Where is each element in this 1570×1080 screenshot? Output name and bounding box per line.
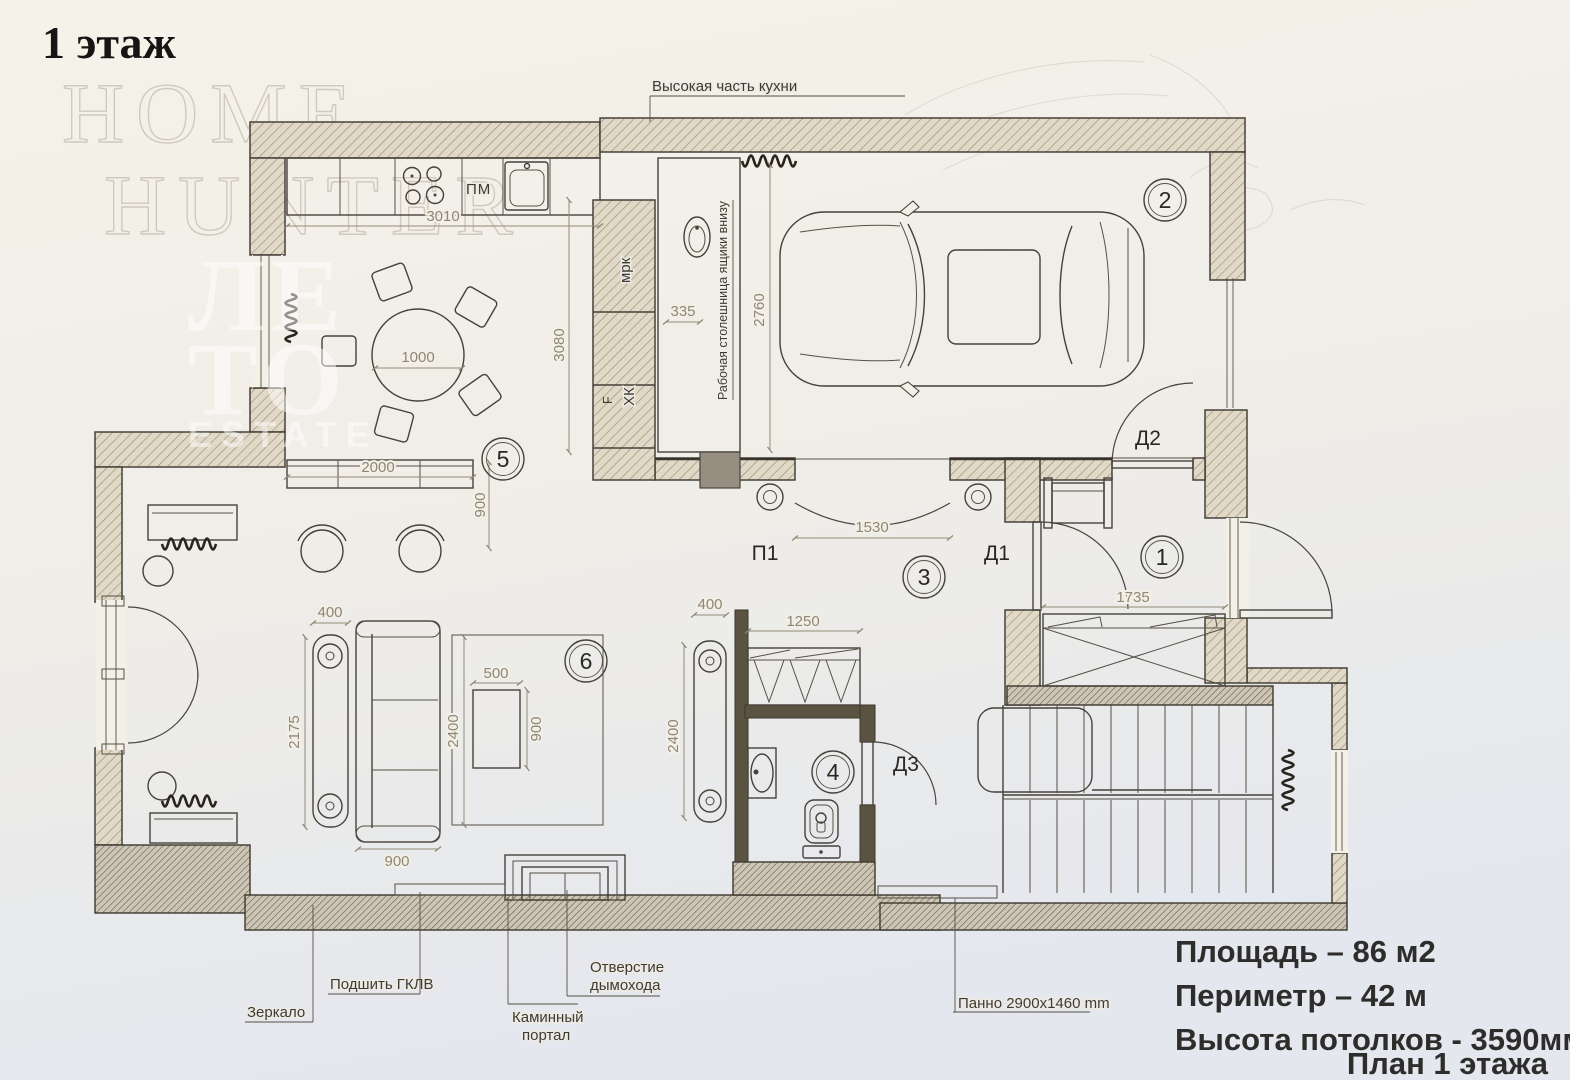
wall-bottom-bathroom <box>733 862 875 895</box>
wall-left-lower <box>95 748 122 845</box>
wall-bathroom-right-lower <box>860 805 875 862</box>
wall-left-upper <box>95 467 122 602</box>
wall-stairs-right-upper <box>1332 683 1347 750</box>
wall-bathroom-left <box>735 610 748 862</box>
floor-plan-photo: HOME HUNTER <box>0 0 1570 1080</box>
wall-bottom-stairs <box>880 903 1347 930</box>
cabinet-mrk-label: мрк <box>617 257 634 283</box>
cabinet-hk-label: ХК <box>621 387 638 406</box>
d1-label: Д1 <box>984 542 1010 565</box>
dim-entry-wardrobe: 1735 <box>1116 589 1149 606</box>
dim-bar-depth: 900 <box>472 492 489 517</box>
chimney-label-2: дымохода <box>590 977 661 994</box>
dim-console-right-width: 400 <box>697 596 722 613</box>
dim-rug-length: 2400 <box>445 714 462 747</box>
room-6-number: 6 <box>580 648 593 674</box>
room-5-number: 5 <box>497 446 510 472</box>
wall-bathroom-top <box>745 705 875 718</box>
stairs-window <box>1331 750 1348 853</box>
dim-coffee-table-width: 500 <box>483 665 508 682</box>
wall-garage-top <box>600 118 1245 152</box>
wall-corner-bottom-left <box>95 845 250 913</box>
dim-kitchen-run: 3010 <box>426 208 459 225</box>
wall-kitchen-top <box>250 122 600 158</box>
wall-bathroom-right-upper <box>860 705 875 742</box>
tall-cabinets: мрк F ХК <box>593 200 655 480</box>
wall-hall-top-end <box>1193 458 1205 480</box>
room-4-number: 4 <box>827 759 840 785</box>
page-title: 1 этаж <box>42 17 177 68</box>
dim-console-right-length: 2400 <box>665 719 682 752</box>
floor-plan-canvas: HOME HUNTER <box>0 0 1570 1080</box>
room-3-number: 3 <box>918 564 931 590</box>
worktop-label: Рабочая столешница ящики внизу <box>716 200 730 400</box>
dim-console-left-width: 400 <box>317 604 342 621</box>
d3-label: Д3 <box>893 753 919 776</box>
fireplace-label-2: портал <box>522 1027 570 1044</box>
p1-label: П1 <box>752 542 779 565</box>
dim-console-left-length: 2175 <box>286 715 303 748</box>
cabinet-f-label: F <box>601 396 615 404</box>
room-2-number: 2 <box>1159 187 1172 213</box>
gklv-label: Подшить ГКЛВ <box>330 976 434 993</box>
dim-bath-wardrobe: 1250 <box>786 613 819 630</box>
dim-sofa-width: 900 <box>384 853 409 870</box>
wall-garage-right <box>1210 152 1245 280</box>
dim-dining-table: 1000 <box>401 349 434 366</box>
panel-label: Панно 2900х1460 mm <box>958 995 1110 1012</box>
dim-garage-width: 2760 <box>751 293 768 326</box>
dim-worktop-width: 335 <box>670 303 695 320</box>
dishwasher-label: ПМ <box>466 181 491 198</box>
info-area: Площадь – 86 м2 <box>1175 934 1436 969</box>
chimney-label-1: Отверстие <box>590 959 664 976</box>
wall-entry-bottom-right <box>1247 668 1347 683</box>
dim-p1-opening: 1530 <box>855 519 888 536</box>
dim-kitchen-depth: 3080 <box>551 328 568 361</box>
wall-stairs-top <box>1007 686 1273 705</box>
dim-bar-counter: 2000 <box>361 459 394 476</box>
fireplace-label-1: Каминный <box>512 1009 584 1026</box>
room-1-number: 1 <box>1156 544 1169 570</box>
info-perimeter: Периметр – 42 м <box>1175 978 1427 1013</box>
watermark-estate: ESTATE <box>188 414 379 455</box>
d2-label: Д2 <box>1135 427 1161 450</box>
high-kitchen-label: Высокая часть кухни <box>652 78 797 95</box>
wall-entry-right-upper <box>1205 410 1247 518</box>
shaft-column <box>700 452 740 488</box>
mirror-label: Зеркало <box>247 1004 305 1021</box>
wall-hall-entry-upper <box>1005 458 1040 522</box>
wall-stairs-right-lower <box>1332 853 1347 903</box>
info-plan-name: План 1 этажа <box>1347 1046 1549 1080</box>
dim-coffee-table-length: 900 <box>528 716 545 741</box>
